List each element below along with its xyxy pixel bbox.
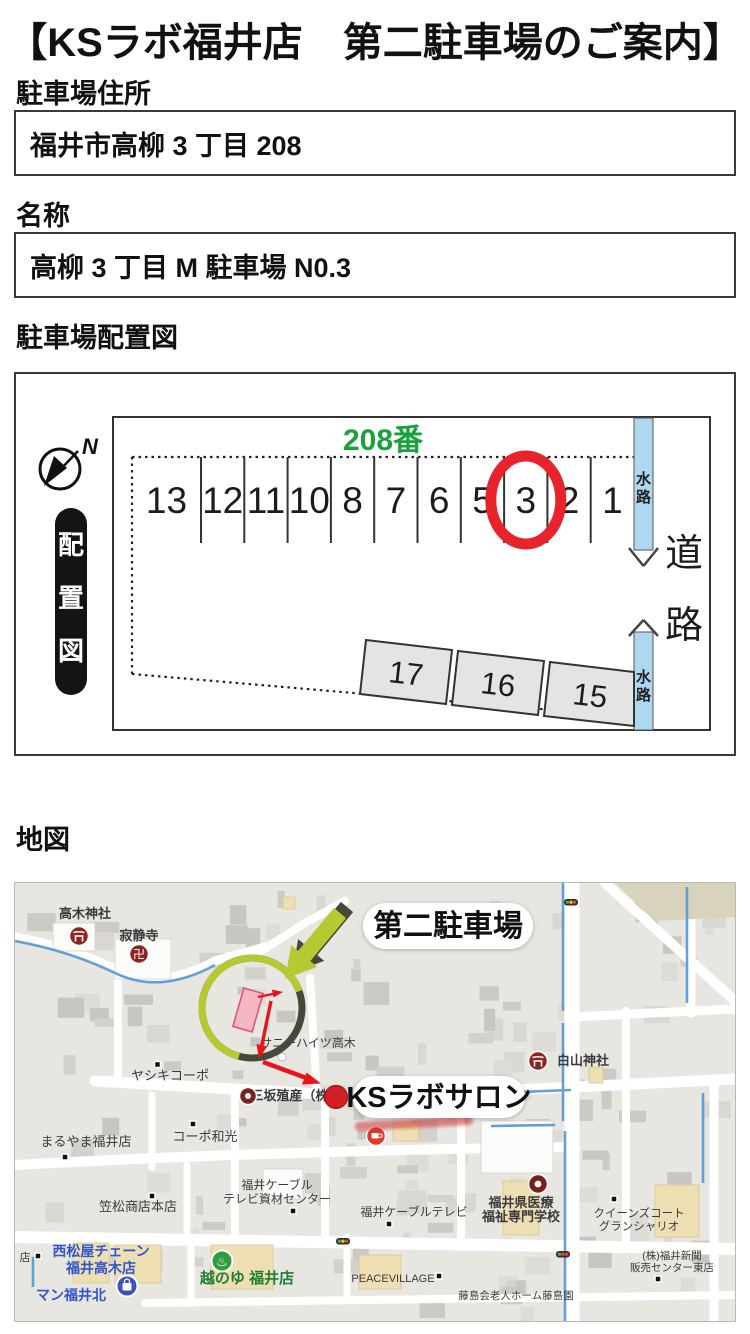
callout-parking-label: 第二駐車場: [373, 909, 523, 943]
poi-shimbun-line1: (株)福井新聞: [642, 1249, 702, 1262]
salon-location-dot: [325, 1086, 348, 1109]
name-box: 高柳 3 丁目 M 駐車場 N0.3: [14, 232, 736, 298]
poi-yashiki-corpo: ヤシキコーポ: [131, 1068, 209, 1083]
stall-17: 17: [387, 654, 425, 693]
svg-text:♨: ♨: [216, 1254, 228, 1269]
waterway-bottom-char-2: 路: [636, 686, 652, 704]
square-icon-cable-tv: [386, 1221, 392, 1227]
poi-kasamatsu: 笠松商店本店: [99, 1199, 177, 1214]
waterway-top-char-1: 水: [636, 470, 652, 488]
square-icon-peacevillage: [436, 1273, 442, 1279]
map-section-label: 地図: [16, 818, 70, 857]
layout-diagram-svg: 208番 13 12 11 10 8 7 6 5 3 2 1 水 路 道 路: [16, 374, 734, 754]
address-value: 福井市高柳 3 丁目 208: [16, 124, 302, 163]
block-number-label: 208番: [343, 424, 424, 457]
poi-takagi-jinja: 高木神社: [59, 906, 111, 921]
address-box: 福井市高柳 3 丁目 208: [14, 110, 736, 176]
poi-medical-line2: 福祉専門学校: [481, 1209, 561, 1224]
svg-text:6: 6: [429, 480, 450, 521]
poi-man-fukui: マン福井北: [36, 1287, 106, 1303]
page-title: 【KSラボ福井店 第二駐車場のご案内】: [0, 10, 750, 68]
poi-shimbun-line2: 販売センター東店: [630, 1261, 714, 1274]
road-char-1: 道: [665, 533, 703, 575]
svg-text:7: 7: [386, 480, 407, 521]
poi-queens-line1: クイーンズコート: [593, 1206, 684, 1220]
poi-cable-center-line2: テレビ資材センター: [223, 1192, 331, 1206]
square-icon-shimbun: [655, 1276, 661, 1282]
poi-queens-line2: グランシャリオ: [599, 1219, 680, 1233]
road-char-2: 路: [665, 605, 703, 647]
stall-16: 16: [479, 665, 517, 704]
poi-peacevillage: PEACEVILLAGE: [351, 1273, 434, 1285]
svg-text:卍: 卍: [133, 948, 145, 962]
svg-text:1: 1: [602, 480, 623, 521]
svg-text:8: 8: [342, 480, 363, 521]
square-icon-kasamatsu: [149, 1193, 155, 1199]
callout-salon-label: KSラボサロン: [346, 1081, 531, 1114]
parking-layout-diagram: 208番 13 12 11 10 8 7 6 5 3 2 1 水 路 道 路: [14, 372, 736, 756]
poi-maruyama: まるやま福井店: [40, 1134, 131, 1149]
compass-n-label: N: [82, 434, 99, 459]
svg-text:13: 13: [146, 480, 187, 521]
legend-char-1: 配: [58, 530, 84, 560]
poi-medical-line1: 福井県医療: [487, 1195, 554, 1210]
poi-cable-tv: 福井ケーブルテレビ: [360, 1204, 467, 1219]
poi-fujishima: 藤島会老人ホーム藤島園: [458, 1289, 573, 1302]
poi-hakusan: 白山神社: [557, 1053, 609, 1068]
name-value: 高柳 3 丁目 M 駐車場 N0.3: [16, 246, 351, 285]
name-label: 名称: [16, 194, 70, 233]
bag-icon-nishimatsuya: [117, 1276, 138, 1297]
map-svg: 高木神社 寂静寺 サニーハイツ高木 ヤシキコーポ 三坂殖産（株） まるやま福井店…: [15, 883, 735, 1321]
square-icon-queens: [611, 1196, 617, 1202]
dot-icon-misaka: [240, 1088, 257, 1105]
torii-icon-takagi: [70, 927, 89, 946]
address-label: 駐車場住所: [16, 72, 151, 111]
svg-text:11: 11: [247, 480, 285, 521]
layout-legend-pill: 配 置 図: [55, 508, 87, 695]
square-icon-maruyama: [62, 1154, 68, 1160]
legend-char-3: 図: [58, 636, 84, 666]
map: 高木神社 寂静寺 サニーハイツ高木 ヤシキコーポ 三坂殖産（株） まるやま福井店…: [14, 882, 736, 1322]
legend-char-2: 置: [58, 583, 84, 613]
poi-corpo-wako: コーポ和光: [172, 1129, 237, 1144]
square-icon-wako: [190, 1121, 196, 1127]
compass-icon: N: [40, 434, 99, 489]
svg-text:12: 12: [202, 480, 243, 521]
stall-15: 15: [571, 676, 609, 715]
poi-cable-center-line1: 福井ケーブル: [241, 1177, 312, 1192]
poi-koshinoyu: 越のゆ 福井店: [199, 1269, 294, 1287]
dot-icon-medical: [529, 1175, 548, 1194]
poi-sunny-heights: サニーハイツ高木: [260, 1035, 356, 1050]
square-icon-cable-center: [290, 1208, 296, 1214]
square-icon-mise: [35, 1253, 41, 1259]
svg-text:3: 3: [516, 480, 537, 521]
torii-icon-hakusan: [529, 1052, 548, 1071]
dot-icon-sunny-heights: [278, 1053, 286, 1061]
poi-nishimatsuya-line2: 福井高木店: [65, 1260, 136, 1276]
poi-jakujoji: 寂静寺: [119, 928, 158, 943]
poi-nishimatsuya-line1: 西松屋チェーン: [52, 1243, 149, 1259]
poi-mise-partial: 店: [20, 1250, 31, 1264]
waterway-top-char-2: 路: [636, 488, 652, 506]
manji-icon-jakujoji: 卍: [130, 945, 149, 964]
onsen-icon-koshinoyu: ♨: [212, 1251, 233, 1272]
square-icon-yashiki: [155, 1062, 161, 1068]
svg-text:10: 10: [289, 480, 330, 521]
waterway-bottom-char-1: 水: [636, 668, 652, 686]
layout-section-label: 駐車場配置図: [16, 316, 178, 355]
